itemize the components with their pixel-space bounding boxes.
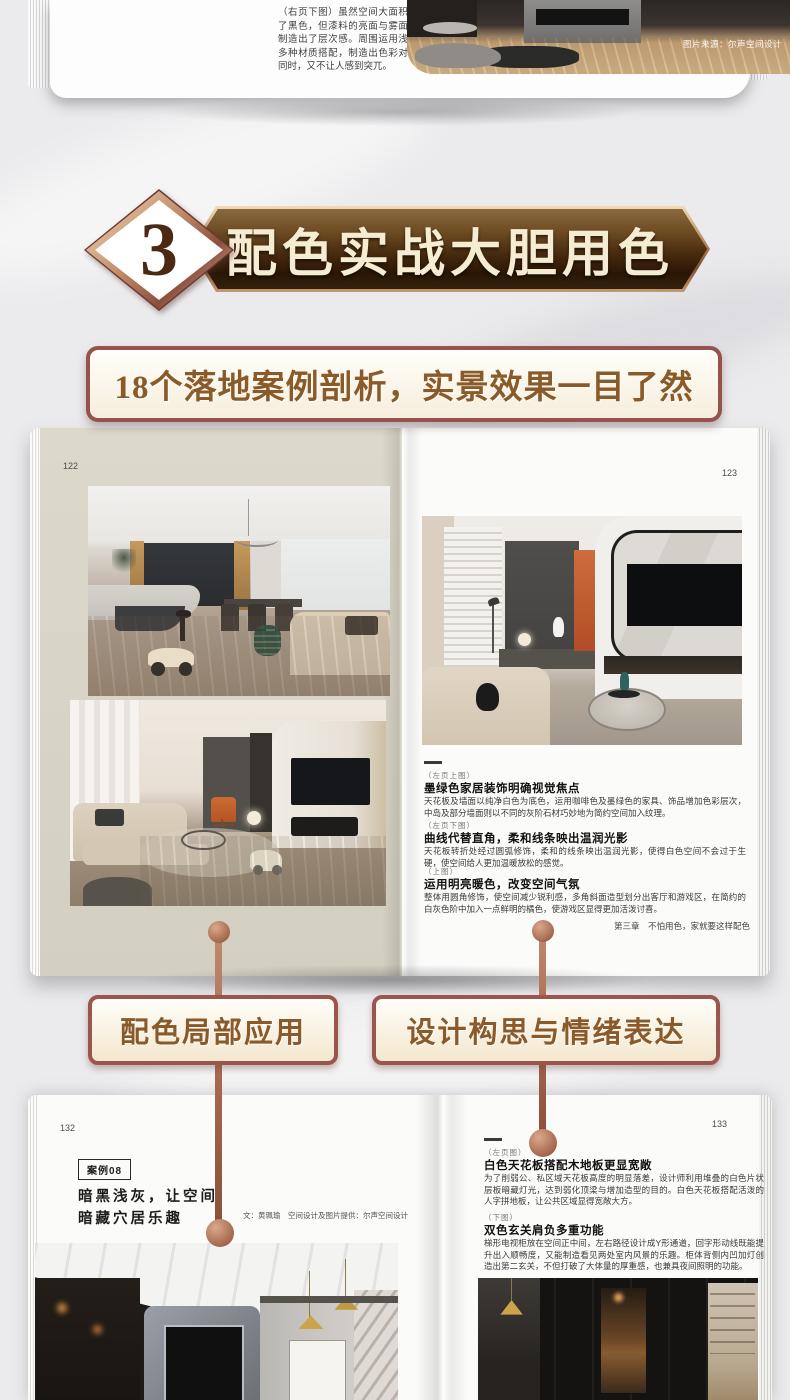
pendant-cord [345,1259,346,1300]
case-title-line2: 暗藏穴居乐趣 [78,1209,183,1229]
cabinet-glow [57,1303,67,1313]
connector-dot [206,1219,234,1247]
caption-heading: 双色玄关肩负多重功能 [484,1222,604,1238]
page-number-122: 122 [63,461,78,471]
pendant-cord [511,1278,512,1300]
book-spread-132-133: 132 133 案例08 暗黑浅灰，让空间 暗藏穴居乐趣 文：黄珮瑜 空间设计及… [28,1095,772,1400]
niche-lamp-glow [614,1293,623,1302]
photo-credit: 图片来源：尔声空间设计 [683,38,782,50]
caption-heading: 曲线代替直角，柔和线条映出温润光影 [424,830,628,846]
callout-right-label: 设计构思与情绪表达 [406,1009,685,1051]
side-table-shape [423,22,478,34]
cabinet-glow [93,1325,102,1334]
moon-lamp [518,633,531,646]
top-book: （右页下图）虽然空间大面积使用了黑色，但漆料的亮面与雾面变化制造出了层次感。周围… [50,0,750,98]
connector-dot [208,921,230,943]
wood-floor-strips [88,616,390,696]
marble-wall [251,541,281,608]
page-stack-left [30,428,40,976]
bunny-figure [553,617,564,638]
section-banner: 配色实战大胆用色 [190,206,710,292]
caption-heading: 运用明亮暖色，改变空间气氛 [424,876,580,892]
caption-body: 整体用圆角修饰，使空间减少锐利感，多角斜面造型划分出客厅和游戏区，在简约的白灰色… [424,892,746,915]
top-book-caption: （右页下图）虽然空间大面积使用了黑色，但漆料的亮面与雾面变化制造出了层次感。周围… [278,6,428,74]
caption-body: 天花板转折处经过圆弧修饰，柔和的线条映出温润光影，使得白色空间不会过于生硬，使空… [424,846,746,869]
photo-dark-interior-stone-doorway [35,1243,398,1400]
toy-car-wheel [179,662,193,676]
section-subtitle: 18个落地案例剖析，实景效果一目了然 [115,360,694,408]
orange-niche [574,550,596,651]
caption-body: 梯形电视柜放在空间正中间，左右路径设计成Y形通道，回字形动线既能提升出入顺畅度，… [484,1238,764,1273]
page-number-133: 133 [712,1119,727,1129]
left-counter-zone [478,1278,540,1400]
marble-wall-right [354,1290,398,1400]
black-plush-toy [476,683,498,710]
callout-right: 设计构思与情绪表达 [372,995,720,1065]
photo-living-room-orange-chair [70,700,386,906]
chapter-footer: 第三章 不怕用色，家就要这样配色 [424,920,750,932]
caption-body: 天花板及墙面以纯净白色为底色，运用咖啡色及墨绿色的家具、饰品增加色彩层次，中岛及… [424,796,746,819]
sofa-cushion-dark [95,809,123,825]
page-number-123: 123 [722,468,737,478]
black-tray [608,690,640,698]
dark-beam [260,1296,398,1302]
dark-accent-wall [505,541,579,660]
tv-screen [536,9,630,25]
book-gutter [416,1095,468,1400]
connector-dot [529,1129,557,1157]
case-title-line1: 暗黑浅灰，让空间 [78,1187,218,1207]
photo-living-room-marble-tv [422,516,742,745]
photo-dark-entry-hall [478,1278,758,1400]
niche-table [607,1354,641,1358]
wood-floor-strips [140,836,386,906]
section-title: 配色实战大胆用色 [226,212,674,286]
connector-dot [532,920,554,942]
pendant-lamp [236,532,278,547]
pendant-cord [309,1271,310,1318]
caption-body: 为了削弱公、私区域天花板高度的明显落差，设计师利用堆叠的白色片状层板暗藏灯光，达… [484,1173,764,1208]
plant [112,549,136,578]
callout-left-label: 配色局部应用 [120,1009,306,1051]
section-number: 3 [84,189,234,311]
caption-rule [424,761,442,764]
tv-screen [627,564,742,626]
connector-line-left [215,932,222,1233]
book-spread-122-123: 122 123 [30,428,770,976]
page-number-132: 132 [60,1123,75,1133]
case-label: 案例08 [78,1159,131,1180]
dark-cabinet-left [35,1278,140,1400]
callout-left: 配色局部应用 [88,995,338,1065]
page-stack-right [757,428,770,976]
toy-car-wheel [151,662,165,676]
floor-lamp [492,603,494,653]
shelf-lines [710,1293,755,1354]
teal-vase [620,672,629,690]
orange-chair [211,797,236,822]
tv-screen [291,758,370,805]
cushion-shape [415,43,501,68]
caption-heading: 墨绿色家居装饰明确视觉焦点 [424,780,580,796]
doorway-inner-dark [164,1325,244,1400]
section-subtitle-box: 18个落地案例剖析，实景效果一目了然 [86,346,722,422]
section-number-badge: 3 [84,189,234,311]
photo-open-kitchen-living [88,486,390,696]
top-book-shadow [70,92,730,132]
pendant-lamp [248,499,249,537]
caption-rule [484,1138,502,1141]
white-window [289,1340,345,1400]
photo-living-room-herringbone: 图片来源：尔声空间设计 [407,0,790,74]
caption-heading: 白色天花板搭配木地板更显宽敞 [484,1157,652,1173]
author-credit: 文：黄珮瑜 空间设计及图片提供：尔声空间设计 [243,1210,408,1221]
promo-page: （右页下图）虽然空间大面积使用了黑色，但漆料的亮面与雾面变化制造出了层次感。周围… [0,0,790,1400]
lit-niche [601,1288,646,1393]
tv-niche [291,817,357,836]
